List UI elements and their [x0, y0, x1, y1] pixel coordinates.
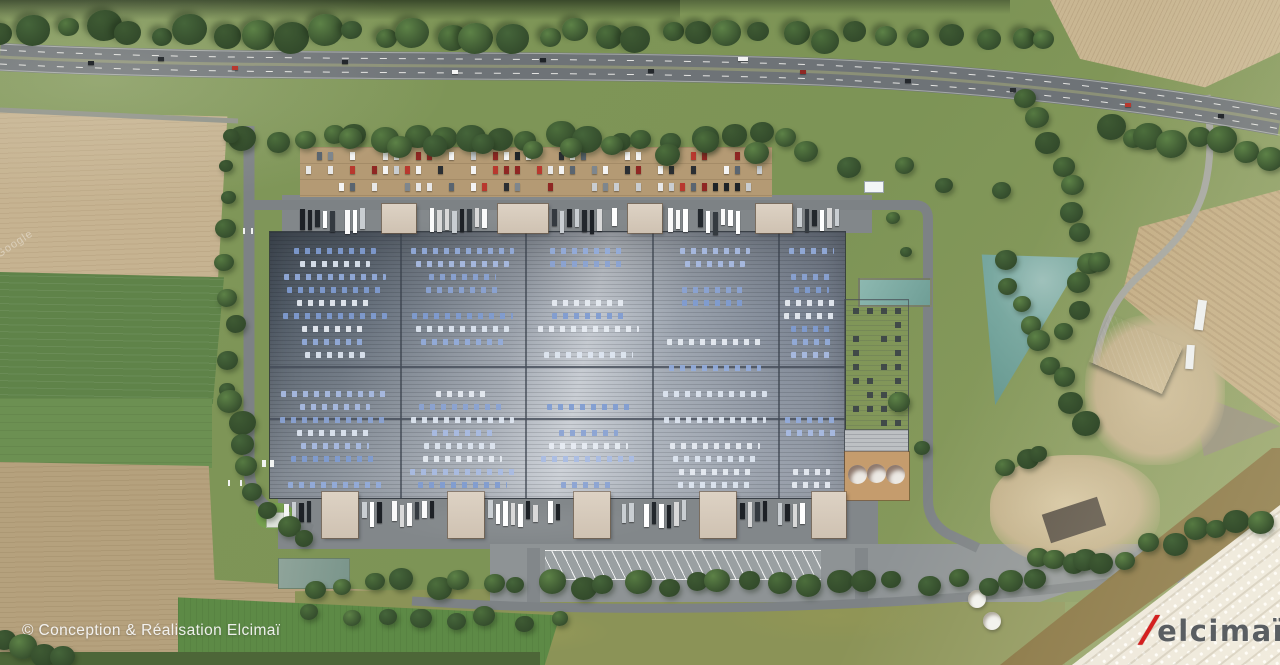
truck-trailer — [668, 208, 673, 232]
dock-canopy — [756, 204, 792, 233]
truck-trailer — [362, 502, 367, 518]
parked-car — [548, 183, 553, 191]
tree — [888, 392, 910, 412]
dock-canopy — [498, 204, 548, 233]
roof-vent — [867, 308, 873, 314]
roof-vent — [867, 392, 873, 398]
truck-trailer — [330, 211, 335, 232]
parked-car — [438, 166, 443, 174]
tree — [1207, 126, 1236, 153]
tree — [267, 132, 290, 153]
tree — [881, 571, 900, 588]
parked-car — [350, 183, 355, 191]
tree — [221, 191, 235, 204]
skylight-row — [410, 469, 514, 475]
skylight-row — [785, 300, 839, 306]
skylight-row — [682, 287, 748, 293]
skylight-row — [792, 339, 831, 345]
truck-trailer — [400, 505, 405, 527]
tree — [1013, 28, 1035, 48]
tree — [341, 21, 361, 39]
skylight-row — [432, 430, 494, 436]
dock-canopy — [628, 204, 662, 233]
roof-vent — [853, 364, 859, 370]
skylight-row — [791, 352, 832, 358]
copyright-caption: © Conception & Réalisation Elcimaï — [22, 622, 281, 640]
roof-bay-line — [652, 232, 654, 498]
truck-trailer — [659, 504, 664, 529]
aerial-site-rendering: Google © Conception & Réalisation Elcima… — [0, 0, 1280, 665]
highway-car — [648, 69, 654, 73]
roof-vent — [881, 406, 887, 412]
skylight-row — [552, 313, 626, 319]
highway-car — [342, 60, 348, 64]
sprinkler-tank-pad — [845, 452, 909, 500]
skylight-row — [300, 404, 370, 410]
skylight-row — [280, 417, 390, 423]
roof-vent — [881, 392, 887, 398]
tree — [979, 578, 999, 596]
tree — [274, 22, 309, 54]
skylight-row — [794, 287, 829, 293]
tree — [1054, 323, 1073, 340]
skylight-row — [785, 417, 838, 423]
tree — [1184, 517, 1209, 539]
road-marking — [240, 480, 242, 486]
dock-canopy — [382, 204, 416, 233]
skylight-row — [786, 430, 838, 436]
skylight-row — [301, 443, 369, 449]
skylight-row — [561, 482, 616, 488]
truck-trailer — [299, 503, 304, 522]
parked-car — [559, 166, 564, 174]
tree — [827, 570, 852, 593]
parked-car — [317, 152, 322, 160]
skylight-row — [436, 391, 489, 397]
roof-vent — [895, 420, 901, 426]
tree — [539, 569, 567, 594]
logo-wordmark: elcimaï — [1157, 616, 1280, 646]
elcimai-logo: / elcimaï — [1142, 616, 1280, 646]
storage-tank — [983, 612, 1001, 630]
parked-car — [504, 152, 509, 160]
parked-car — [669, 183, 674, 191]
truck-trailer — [560, 211, 565, 233]
roof-vent — [895, 308, 901, 314]
skylight-row — [541, 456, 636, 462]
roof-bay-line — [525, 232, 527, 498]
roof-bay-line — [778, 232, 780, 498]
tree — [1069, 223, 1090, 242]
parked-car — [702, 183, 707, 191]
parked-car — [416, 152, 421, 160]
parked-car — [471, 183, 476, 191]
dock-canopy — [448, 492, 484, 538]
skylight-row — [302, 339, 368, 345]
truck-trailer — [360, 208, 365, 229]
skylight-row — [682, 300, 748, 306]
skylight-row — [416, 261, 508, 267]
tree — [1234, 141, 1258, 163]
truck-trailer — [345, 210, 350, 234]
truck-trailer — [590, 210, 595, 234]
truck-trailer — [475, 208, 480, 226]
truck-trailer — [827, 208, 832, 227]
roof-vent — [867, 378, 873, 384]
tree — [722, 124, 747, 146]
parked-car — [416, 183, 421, 191]
parked-car — [372, 166, 377, 174]
highway-car — [905, 79, 911, 83]
skylight-row — [423, 456, 503, 462]
truck-trailer — [377, 502, 382, 523]
truck-trailer — [445, 209, 450, 230]
parked-car — [482, 183, 487, 191]
skylight-row — [291, 456, 379, 462]
parked-car — [504, 183, 509, 191]
sprinkler-tank — [867, 464, 886, 483]
truck-trailer — [575, 209, 580, 227]
skylight-row — [549, 443, 629, 449]
skylight-row — [791, 274, 833, 280]
truck-trailer — [488, 500, 493, 518]
tree — [907, 29, 928, 48]
parked-car — [350, 152, 355, 160]
tree — [935, 178, 952, 194]
parked-car — [416, 166, 421, 174]
tree — [16, 15, 50, 45]
truck-trailer — [422, 501, 427, 519]
truck-trailer — [812, 210, 817, 226]
highway-car — [738, 57, 748, 61]
parked-car — [724, 183, 729, 191]
skylight-row — [670, 443, 759, 449]
truck-trailer — [797, 208, 802, 227]
skylight-row — [552, 300, 624, 306]
tree — [1089, 553, 1113, 574]
highway-car — [1010, 88, 1016, 92]
truck-trailer — [503, 501, 508, 525]
roof-vent — [853, 406, 859, 412]
skylight-row — [679, 469, 750, 475]
dock-canopy — [812, 492, 846, 538]
parked-car — [625, 166, 630, 174]
dock-canopy — [574, 492, 610, 538]
parked-car — [658, 166, 663, 174]
truck-trailer — [674, 502, 679, 527]
tree — [1072, 411, 1100, 436]
skylight-row — [302, 326, 368, 332]
parked-car — [405, 183, 410, 191]
roof-vent — [881, 364, 887, 370]
skylight-row — [793, 469, 830, 475]
truck-trailer — [706, 211, 711, 233]
tree — [1248, 511, 1273, 534]
roof-vent — [853, 336, 859, 342]
parked-car — [713, 183, 718, 191]
truck-trailer — [778, 503, 783, 524]
parked-car — [515, 166, 520, 174]
tree — [1054, 367, 1076, 386]
skylight-row — [419, 404, 506, 410]
skylight-row — [429, 274, 496, 280]
skylight-row — [784, 313, 838, 319]
skylight-row — [418, 482, 508, 488]
parked-car — [449, 183, 454, 191]
truck-trailer — [667, 505, 672, 529]
skylight-row — [300, 261, 371, 267]
tree — [379, 609, 396, 625]
tree — [1024, 569, 1046, 589]
parked-car — [658, 183, 663, 191]
truck-trailer — [629, 503, 634, 522]
parked-car — [691, 183, 696, 191]
truck-trailer — [713, 212, 718, 236]
parked-car — [548, 166, 553, 174]
skylight-row — [663, 391, 767, 397]
dock-canopy — [322, 492, 358, 538]
parked-car — [515, 152, 520, 160]
skylight-row — [297, 430, 373, 436]
sprinkler-tank — [886, 465, 905, 484]
parked-car — [493, 152, 498, 160]
truck-trailer — [793, 504, 798, 527]
skylight-row — [669, 365, 761, 371]
roof-vent — [853, 308, 859, 314]
skylight-row — [287, 287, 382, 293]
skylight-row — [678, 482, 753, 488]
highway-car — [158, 57, 164, 61]
parked-car — [427, 183, 432, 191]
tree — [712, 20, 741, 46]
tree — [1088, 252, 1110, 272]
truck-trailer — [567, 209, 572, 227]
tree — [796, 574, 821, 596]
tree — [601, 136, 623, 156]
parked-car — [746, 183, 751, 191]
truck-trailer — [407, 503, 412, 527]
tree — [242, 20, 275, 49]
parked-car — [394, 166, 399, 174]
parked-car — [735, 166, 740, 174]
tree — [977, 29, 1001, 50]
tree — [1014, 89, 1036, 109]
parked-car — [581, 152, 586, 160]
parked-car — [724, 166, 729, 174]
tree — [387, 136, 412, 159]
truck-trailer — [785, 504, 790, 521]
roof-vent — [853, 350, 859, 356]
skylight-row — [550, 261, 627, 267]
skylight-row — [412, 313, 513, 319]
truck-trailer — [763, 501, 768, 521]
truck-trailer — [430, 208, 435, 231]
truck-trailer — [496, 504, 501, 524]
roof-vent — [895, 350, 901, 356]
parked-car — [636, 166, 641, 174]
parked-car — [306, 166, 311, 174]
tree — [389, 568, 413, 590]
truck-trailer — [683, 209, 688, 232]
parked-car — [570, 166, 575, 174]
parked-car — [405, 166, 410, 174]
skylight-row — [544, 352, 633, 358]
skylight-row — [284, 274, 386, 280]
parked-car — [592, 166, 597, 174]
truck-trailer — [511, 503, 516, 525]
roof-vent — [853, 378, 859, 384]
roof-vent — [881, 336, 887, 342]
truck-trailer — [437, 210, 442, 231]
tree — [376, 29, 397, 48]
tree — [58, 18, 78, 36]
tree — [1035, 132, 1059, 154]
tree — [473, 606, 495, 626]
parked-car — [592, 183, 597, 191]
highway-car — [452, 70, 458, 74]
truck-trailer — [353, 210, 358, 234]
tree — [949, 569, 969, 587]
highway-car — [88, 61, 94, 65]
truck-trailer — [800, 503, 805, 524]
parked-car — [383, 152, 388, 160]
skylight-row — [789, 248, 835, 254]
roof-vent — [881, 308, 887, 314]
truck-trailer — [467, 209, 472, 232]
parked-car — [669, 166, 674, 174]
truck-trailer — [548, 501, 553, 523]
parked-car — [339, 183, 344, 191]
parked-car — [691, 152, 696, 160]
skylight-row — [664, 417, 766, 423]
parked-car — [603, 166, 608, 174]
parked-car — [735, 152, 740, 160]
truck-trailer — [755, 502, 760, 520]
road-marking — [270, 460, 274, 467]
parked-car — [757, 166, 762, 174]
skylight-row — [283, 313, 388, 319]
roof-vent — [867, 406, 873, 412]
truck-trailer — [612, 208, 617, 225]
road-marking — [251, 228, 253, 234]
highway-car — [540, 58, 546, 62]
farm-track — [0, 110, 238, 121]
skylight-row — [297, 300, 372, 306]
skylight-row — [547, 404, 631, 410]
parked-car — [625, 152, 630, 160]
sprinkler-tank — [848, 465, 867, 484]
highway-car — [1125, 103, 1131, 107]
skylight-row — [667, 339, 764, 345]
skylight-row — [673, 456, 757, 462]
logo-slash-icon: / — [1139, 616, 1157, 646]
truck-trailer — [644, 504, 649, 527]
roof-vent — [895, 336, 901, 342]
truck-trailer — [556, 504, 561, 520]
skylight-row — [792, 482, 831, 488]
parked-car — [603, 183, 608, 191]
farm-truck — [1185, 345, 1195, 369]
parked-car — [471, 166, 476, 174]
skylight-row — [288, 482, 383, 488]
truck-trailer — [740, 503, 745, 519]
truck-trailer — [307, 501, 312, 522]
tree — [50, 646, 75, 665]
truck-trailer — [308, 210, 313, 229]
truck-trailer — [526, 501, 531, 519]
skylight-row — [305, 352, 365, 358]
roof-bay-line — [400, 232, 402, 498]
skylight-row — [680, 248, 749, 254]
tree — [540, 28, 561, 47]
truck-trailer — [460, 209, 465, 232]
tree — [295, 530, 313, 547]
site-sign — [864, 181, 884, 193]
skylight-row — [416, 326, 509, 332]
tree — [447, 570, 469, 590]
highway-car — [800, 70, 806, 74]
skylight-row — [411, 417, 515, 423]
skylight-row — [538, 326, 638, 332]
truck-trailer — [652, 502, 657, 523]
skylight-row — [685, 261, 745, 267]
truck-trailer — [582, 210, 587, 233]
skylight-row — [421, 339, 504, 345]
truck-trailer — [748, 502, 753, 527]
skylight-row — [281, 391, 388, 397]
tree — [630, 130, 651, 149]
truck-trailer — [682, 500, 687, 519]
parked-car — [449, 152, 454, 160]
truck-trailer — [698, 209, 703, 227]
parked-car — [328, 152, 333, 160]
tree — [1069, 301, 1090, 320]
skylight-row — [550, 248, 626, 254]
parked-car — [735, 183, 740, 191]
road-marking — [243, 228, 245, 234]
skylight-row — [294, 248, 377, 254]
truck-trailer — [597, 209, 602, 231]
truck-trailer — [835, 209, 840, 226]
parked-car — [636, 183, 641, 191]
truck-trailer — [736, 211, 741, 234]
tree — [1030, 446, 1047, 462]
truck-trailer — [323, 211, 328, 227]
parked-car — [350, 166, 355, 174]
parked-car — [614, 183, 619, 191]
parked-car — [680, 183, 685, 191]
truck-trailer — [415, 502, 420, 519]
truck-trailer — [452, 211, 457, 233]
parked-car — [537, 166, 542, 174]
tree — [1257, 147, 1280, 171]
highway-car — [1218, 114, 1224, 118]
roof-vent — [881, 420, 887, 426]
parked-car — [383, 166, 388, 174]
parked-car — [515, 183, 520, 191]
warehouse-building — [270, 232, 845, 498]
truck-trailer — [805, 209, 810, 232]
truck-trailer — [430, 501, 435, 518]
road-marking — [228, 480, 230, 486]
skylight-row — [426, 287, 499, 293]
parked-car — [636, 152, 641, 160]
tree — [472, 134, 494, 154]
truck-trailer — [370, 502, 375, 527]
highway-car — [232, 66, 238, 70]
parked-car — [328, 166, 333, 174]
truck-trailer — [482, 209, 487, 228]
